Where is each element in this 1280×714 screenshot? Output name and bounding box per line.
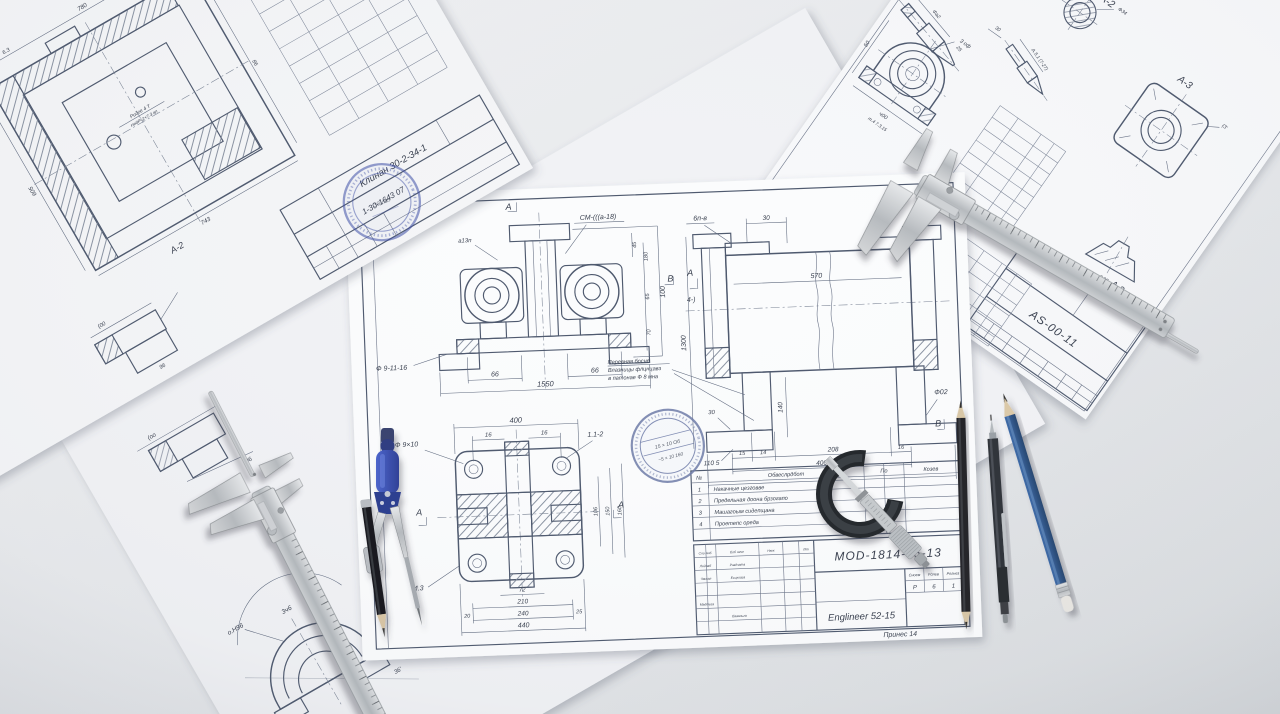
compass-handle bbox=[376, 450, 399, 494]
dim-label: 25 bbox=[575, 609, 583, 615]
dim-label: 14 bbox=[760, 450, 766, 456]
dim-label: 4-) bbox=[687, 297, 696, 304]
tb-cell: Нюж bbox=[767, 549, 775, 553]
col-header: № bbox=[696, 476, 702, 482]
dim-label: 30 bbox=[708, 410, 716, 416]
dim-label: 30 bbox=[762, 215, 770, 222]
dim-label: 180 bbox=[643, 251, 649, 261]
dim-label: 66 bbox=[491, 371, 499, 378]
dim-label: 440 bbox=[518, 622, 530, 629]
col-header: По bbox=[880, 468, 887, 474]
dim-label: Ф02 bbox=[934, 389, 948, 397]
dim-label: 1550 bbox=[537, 379, 555, 389]
dim-label: 72 bbox=[519, 587, 527, 593]
cell: 4 bbox=[699, 522, 702, 528]
tb-cell: Лim bbox=[802, 547, 809, 551]
dim-label: 400 bbox=[509, 415, 523, 425]
tb-val: Р bbox=[913, 585, 917, 591]
dim-label: 16 bbox=[541, 430, 549, 436]
section-label: А bbox=[415, 507, 422, 517]
col-header: Козев bbox=[923, 466, 938, 473]
dim-label: СМ-(((а-18) bbox=[580, 214, 617, 222]
dim-label: 6п-в bbox=[693, 215, 707, 223]
dim-label: 208 bbox=[827, 446, 839, 453]
section-label: А bbox=[617, 500, 624, 510]
tb-col: Fдлев bbox=[928, 572, 939, 576]
section-label: А bbox=[504, 202, 511, 212]
tb-val: 1 bbox=[952, 584, 956, 590]
dim-label: 1300 bbox=[681, 335, 689, 351]
sheet-footer: Принес 14 bbox=[883, 631, 917, 639]
dim-label: 106 bbox=[593, 506, 599, 516]
cell: 1 bbox=[698, 488, 701, 494]
dim-label: 110 5 bbox=[704, 460, 720, 468]
section-label: А bbox=[686, 268, 693, 278]
dim-label: 20 bbox=[463, 613, 471, 619]
tb-cell: Мадтеза bbox=[700, 602, 715, 607]
dim-label: 66 bbox=[591, 367, 599, 374]
dim-label: 140 bbox=[777, 401, 784, 412]
photo-of-engineering-drawings: (оо 96 3ч6 о.Н96 36' AS-00-11 bbox=[0, 0, 1280, 714]
tb-cell: Сло Анб bbox=[698, 551, 711, 555]
tb-cell: Чвскал bbox=[701, 577, 712, 581]
tb-cell: Елб нече bbox=[730, 550, 744, 555]
tb-cell: Есцхлага bbox=[731, 575, 746, 580]
dim-label: 150 bbox=[605, 505, 611, 515]
tb-cell: Рэвдчата bbox=[730, 563, 746, 568]
section-label: В bbox=[935, 418, 941, 428]
center-sheet: 66 66 1550 Ф 9-11-16 СМ-(((а-18) а13п А … bbox=[345, 172, 982, 660]
dim-label: 240 bbox=[517, 610, 529, 617]
dim-label: 1.1-2 bbox=[587, 431, 603, 439]
dim-label: 570 bbox=[810, 273, 822, 280]
dim-label: 210 bbox=[516, 598, 528, 605]
dim-label: Ф 9×10 bbox=[395, 441, 419, 449]
dim-label: 16 bbox=[485, 433, 493, 439]
tb-col: Сноем bbox=[909, 573, 921, 577]
dim-label: Ф 9-11-16 bbox=[376, 365, 407, 373]
dim-label: 100 bbox=[660, 286, 667, 298]
tb-cell: Лидлаб bbox=[699, 564, 712, 568]
tb-col: Рплнез bbox=[947, 571, 960, 575]
dim-label: а13п bbox=[458, 238, 472, 245]
tb-cell: Еваяльга bbox=[732, 614, 747, 619]
compass-pivot bbox=[385, 491, 391, 497]
section-label: В bbox=[667, 273, 673, 283]
